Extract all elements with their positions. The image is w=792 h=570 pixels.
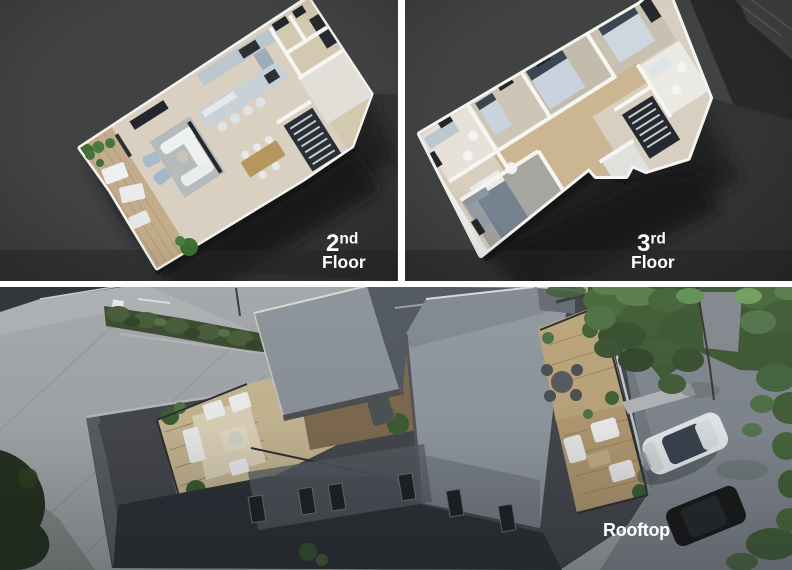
svg-text:Floor: Floor (322, 252, 366, 272)
svg-text:Rooftop: Rooftop (603, 520, 670, 540)
svg-text:Floor: Floor (631, 252, 675, 272)
